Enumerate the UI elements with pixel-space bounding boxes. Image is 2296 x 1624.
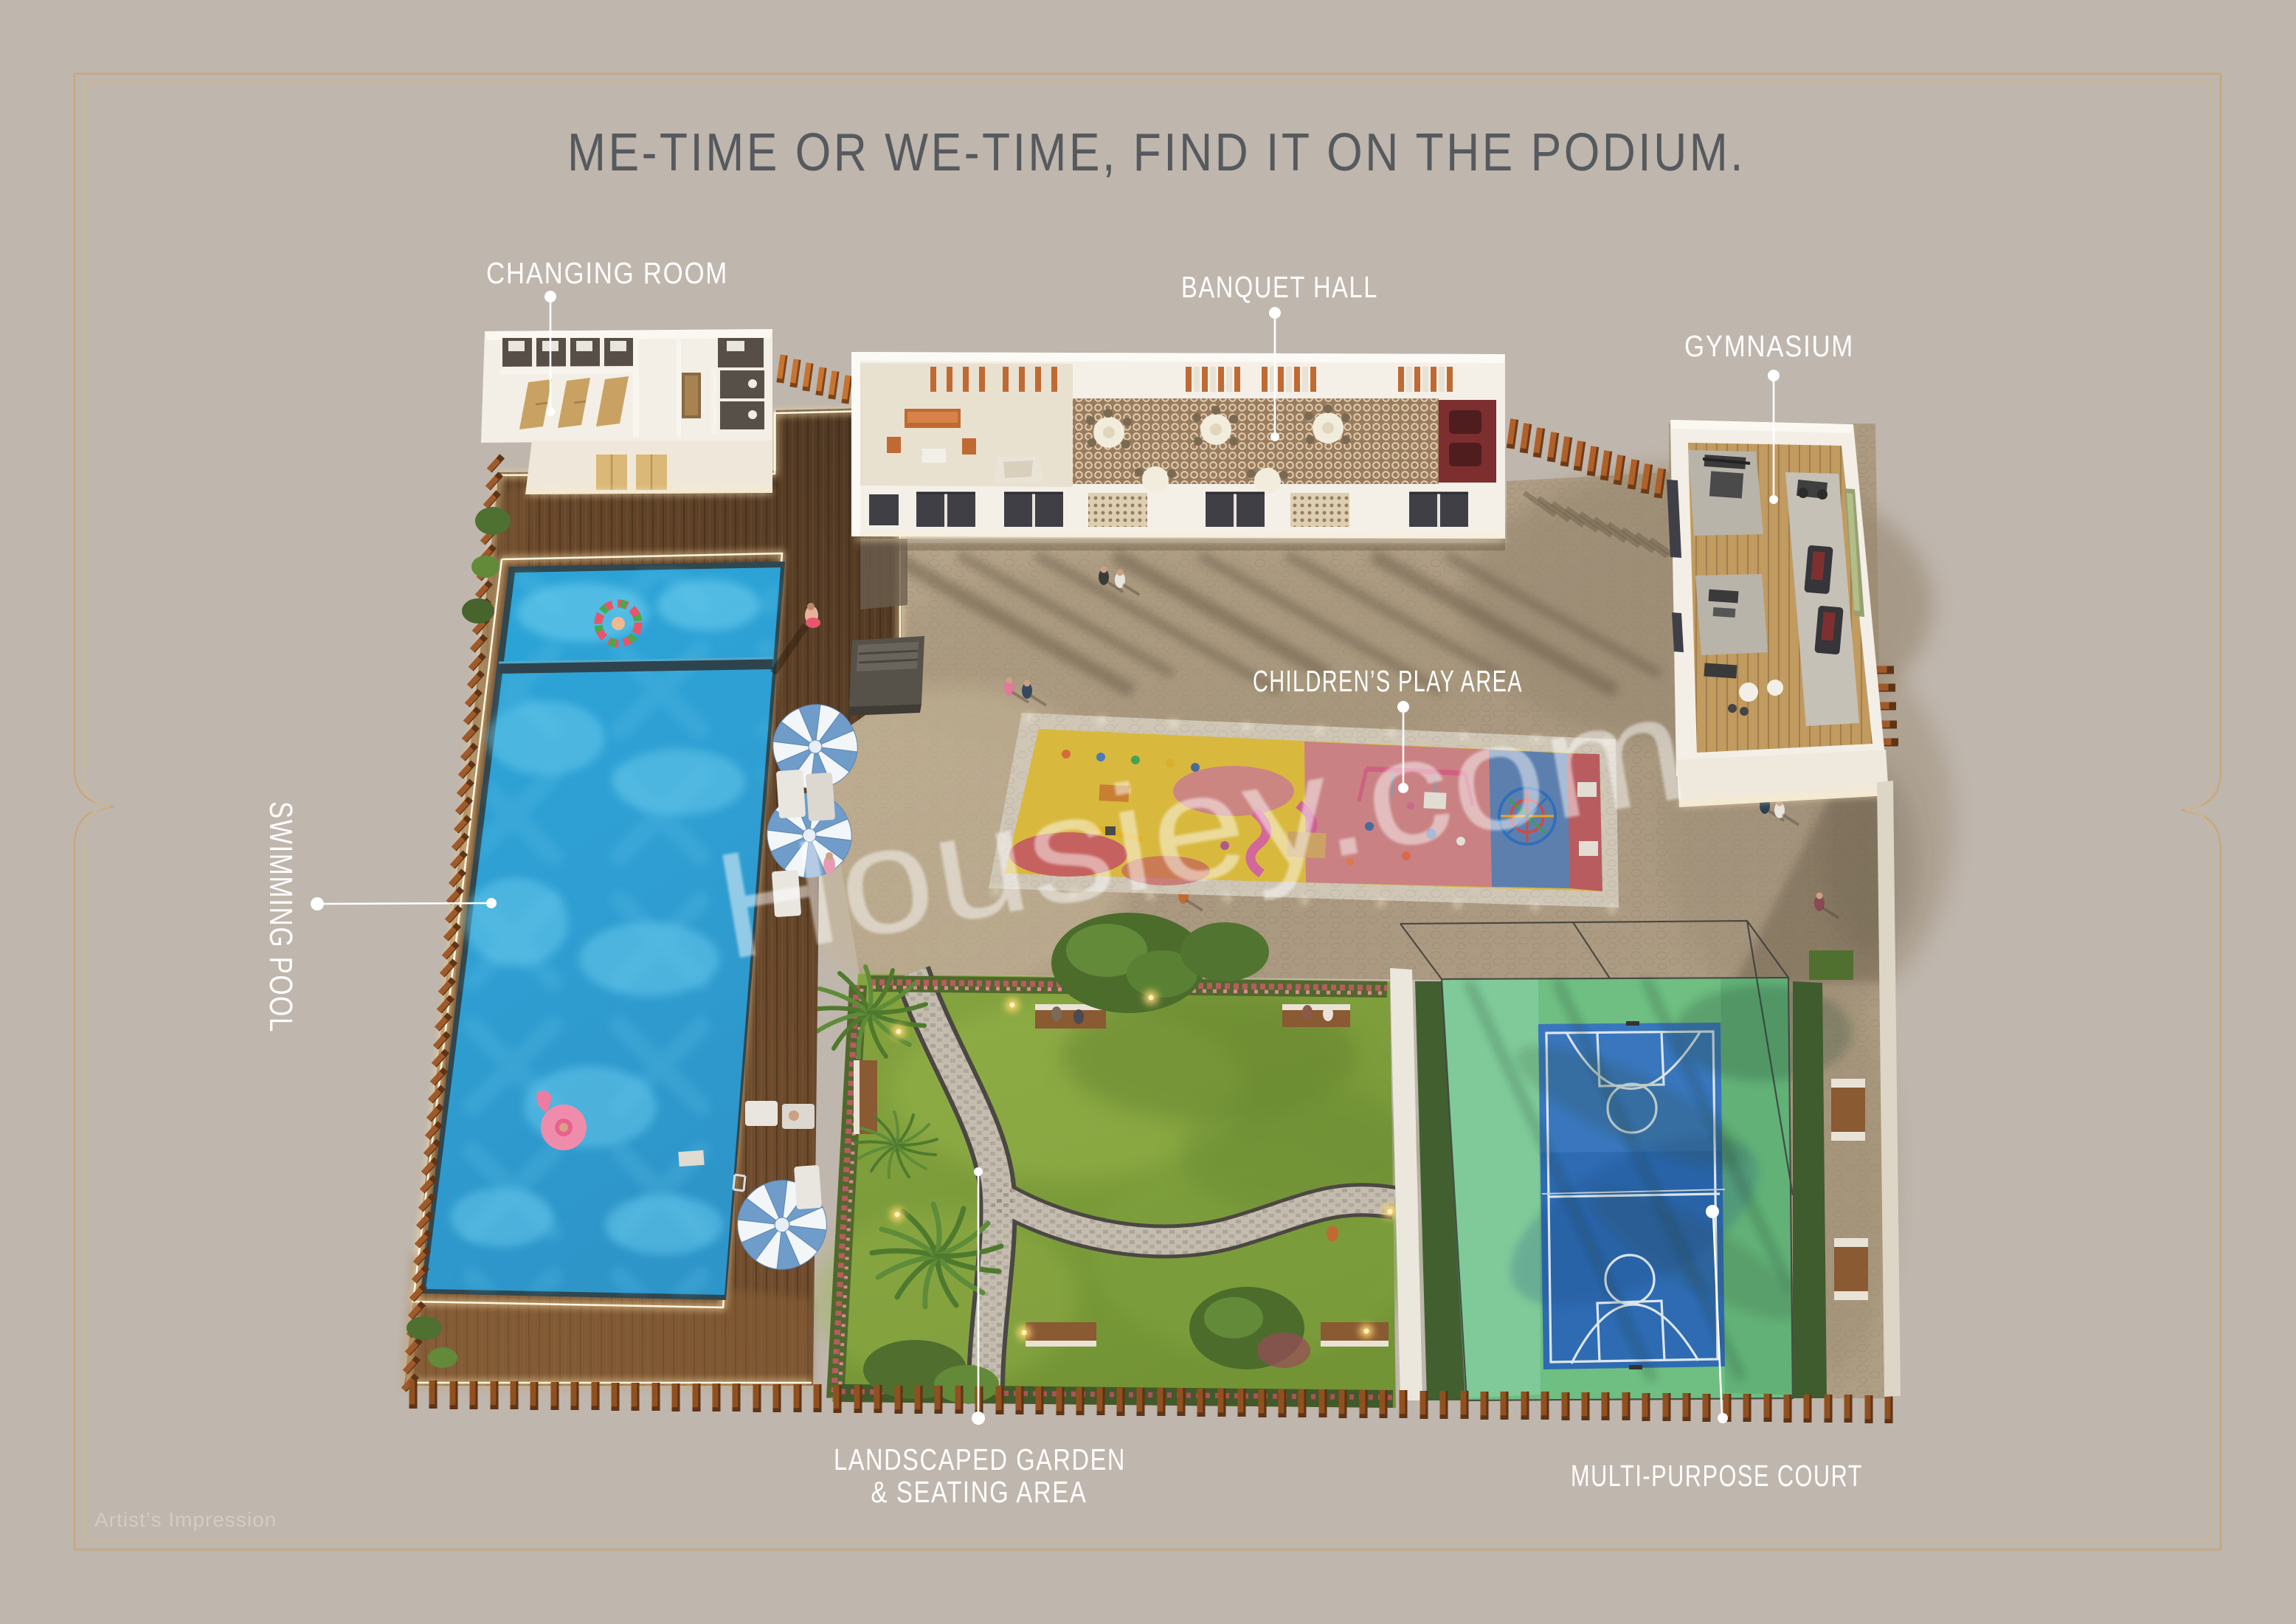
svg-text:GYMNASIUM: GYMNASIUM xyxy=(1684,329,1854,363)
svg-text:CHILDREN’S PLAY AREA: CHILDREN’S PLAY AREA xyxy=(1253,664,1523,698)
svg-text:ME-TIME OR WE-TIME, FIND IT ON: ME-TIME OR WE-TIME, FIND IT ON THE PODIU… xyxy=(567,123,1746,182)
svg-text:BANQUET HALL: BANQUET HALL xyxy=(1181,270,1378,304)
svg-text:SWIMMING POOL: SWIMMING POOL xyxy=(263,801,299,1033)
svg-text:CHANGING ROOM: CHANGING ROOM xyxy=(486,256,728,290)
svg-text:& SEATING AREA: & SEATING AREA xyxy=(871,1475,1088,1509)
svg-text:Artist’s Impression: Artist’s Impression xyxy=(94,1508,277,1531)
svg-text:LANDSCAPED GARDEN: LANDSCAPED GARDEN xyxy=(834,1442,1126,1476)
svg-text:MULTI-PURPOSE COURT: MULTI-PURPOSE COURT xyxy=(1571,1459,1863,1493)
